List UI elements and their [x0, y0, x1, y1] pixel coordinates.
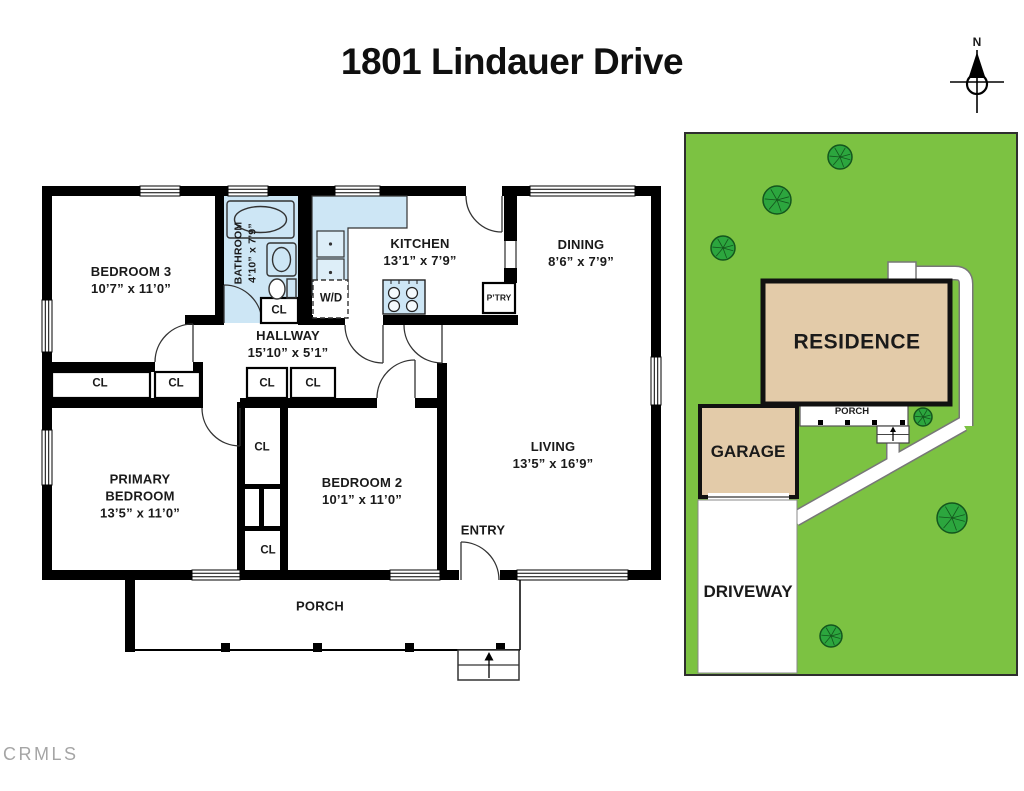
label-bedroom-3: BEDROOM 3 10’7” x 11’0”: [91, 264, 172, 298]
living-door: [404, 325, 442, 363]
window: [651, 357, 661, 405]
door-openings: [459, 186, 502, 580]
window: [42, 430, 52, 485]
back-door: [466, 196, 502, 232]
porch-steps: [458, 650, 519, 680]
crmls-watermark: CRMLS: [3, 744, 79, 765]
kitchen-door: [345, 325, 383, 363]
north-label: N: [973, 35, 982, 51]
label-washer-dryer: W/D: [320, 292, 342, 307]
label-site-porch: PORCH: [835, 406, 869, 418]
label-bedroom-2: BEDROOM 2 10’1” x 11’0”: [322, 475, 403, 509]
label-closet: CL: [259, 377, 274, 392]
window: [192, 570, 240, 580]
toilet-bowl-icon: [269, 279, 285, 299]
window: [335, 186, 380, 196]
bedroom2-door: [377, 360, 415, 398]
label-closet: CL: [260, 544, 275, 559]
stove-icon: [383, 280, 425, 314]
primary-bedroom-door: [202, 408, 240, 446]
window: [140, 186, 180, 196]
label-bathroom: BATHROOM 4’10” x 7’9”: [232, 222, 259, 285]
window: [228, 186, 268, 196]
label-porch: PORCH: [296, 599, 344, 616]
label-living: LIVING 13’5” x 16’9”: [513, 439, 594, 473]
label-dining: DINING 8’6” x 7’9”: [548, 237, 614, 271]
floor-plan-page: 1801 Lindauer Drive BEDROOM 3 10’7” x 11…: [0, 0, 1024, 791]
label-closet: CL: [92, 377, 107, 392]
label-garage: GARAGE: [711, 441, 786, 463]
cased-opening: [504, 241, 517, 268]
page-title: 1801 Lindauer Drive: [341, 41, 683, 83]
label-hallway: HALLWAY 15’10” x 5’1”: [248, 328, 329, 362]
window: [42, 300, 52, 352]
label-primary-bedroom: PRIMARY BEDROOM 13’5” x 11’0”: [90, 472, 190, 523]
label-pantry: P’TRY: [487, 292, 512, 303]
label-closet: CL: [254, 441, 269, 456]
label-kitchen: KITCHEN 13’1” x 7’9”: [383, 236, 456, 270]
label-closet: CL: [168, 377, 183, 392]
label-entry: ENTRY: [461, 523, 506, 540]
window: [517, 570, 628, 580]
compass-icon: [950, 50, 1004, 113]
label-driveway: DRIVEWAY: [703, 581, 792, 603]
bedroom3-door: [155, 324, 193, 362]
plan-drawing: [0, 0, 1024, 791]
porch-structure: [126, 580, 520, 680]
label-closet: CL: [305, 377, 320, 392]
site-porch-steps: [877, 426, 909, 443]
window: [390, 570, 440, 580]
label-residence: RESIDENCE: [793, 328, 920, 355]
label-closet: CL: [271, 304, 286, 319]
window: [530, 186, 635, 196]
